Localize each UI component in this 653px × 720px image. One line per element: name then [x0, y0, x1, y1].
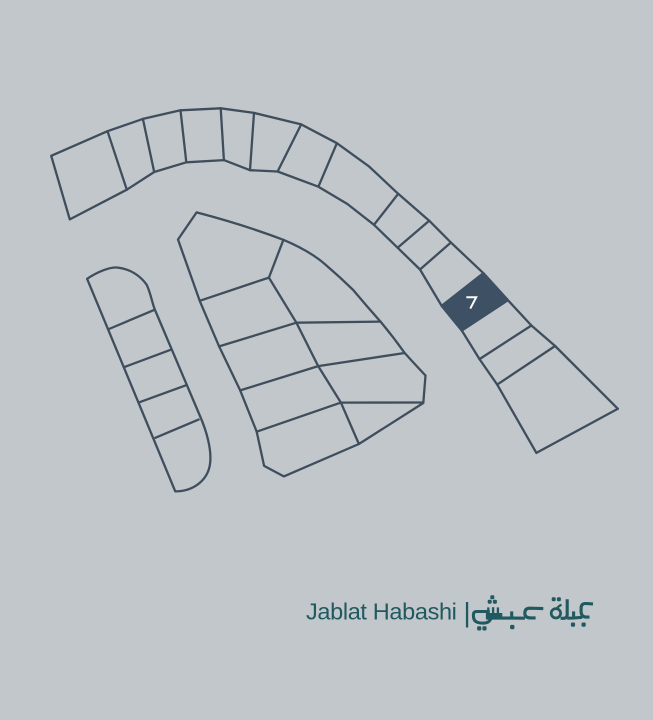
svg-text:Jablat Habashi: Jablat Habashi	[306, 598, 457, 624]
